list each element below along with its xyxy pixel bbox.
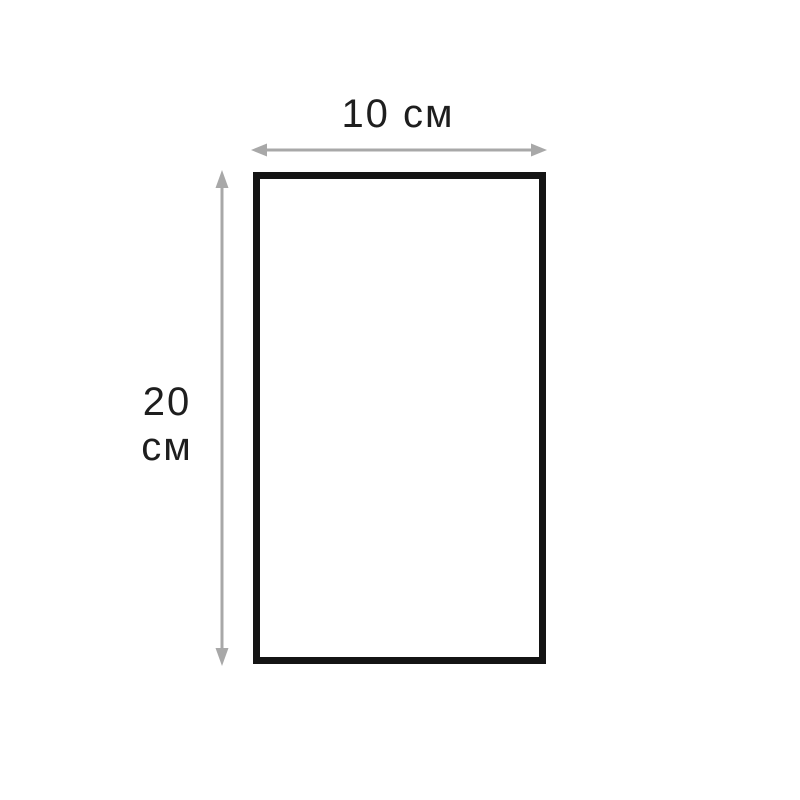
width-label: 10 см (298, 92, 498, 137)
dimension-diagram: 10 см 20 см (0, 0, 800, 800)
height-label-unit: см (117, 425, 217, 470)
height-label-value: 20 (117, 380, 217, 425)
rectangle-shape (253, 172, 546, 664)
width-dimension-arrow-icon (251, 140, 547, 160)
height-label: 20 см (117, 380, 217, 470)
